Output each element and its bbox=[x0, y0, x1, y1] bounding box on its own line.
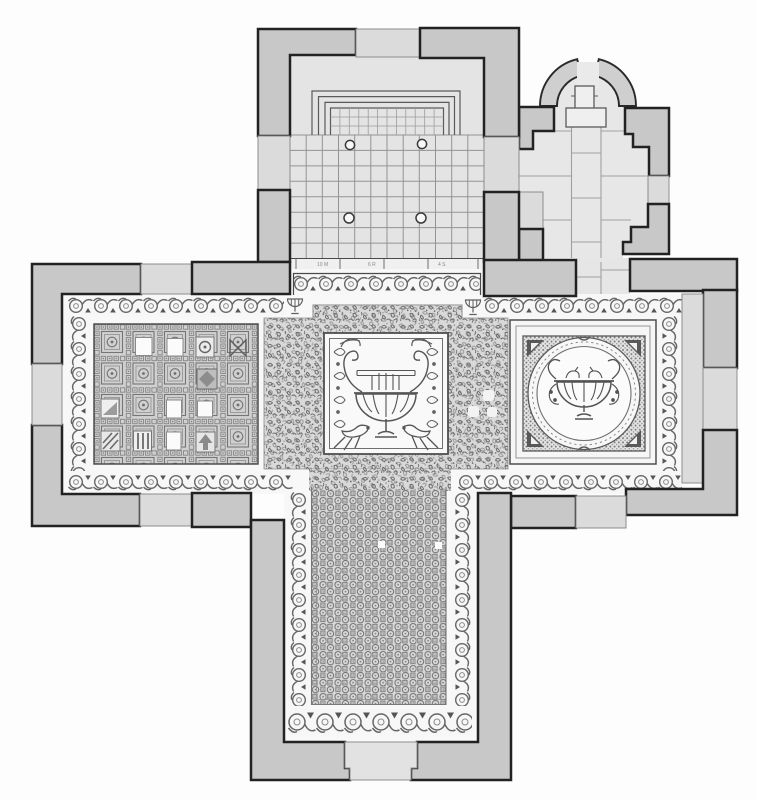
svg-text:10 M: 10 M bbox=[317, 262, 328, 268]
svg-text:4 S: 4 S bbox=[438, 262, 446, 268]
svg-text:6 R: 6 R bbox=[368, 262, 376, 268]
